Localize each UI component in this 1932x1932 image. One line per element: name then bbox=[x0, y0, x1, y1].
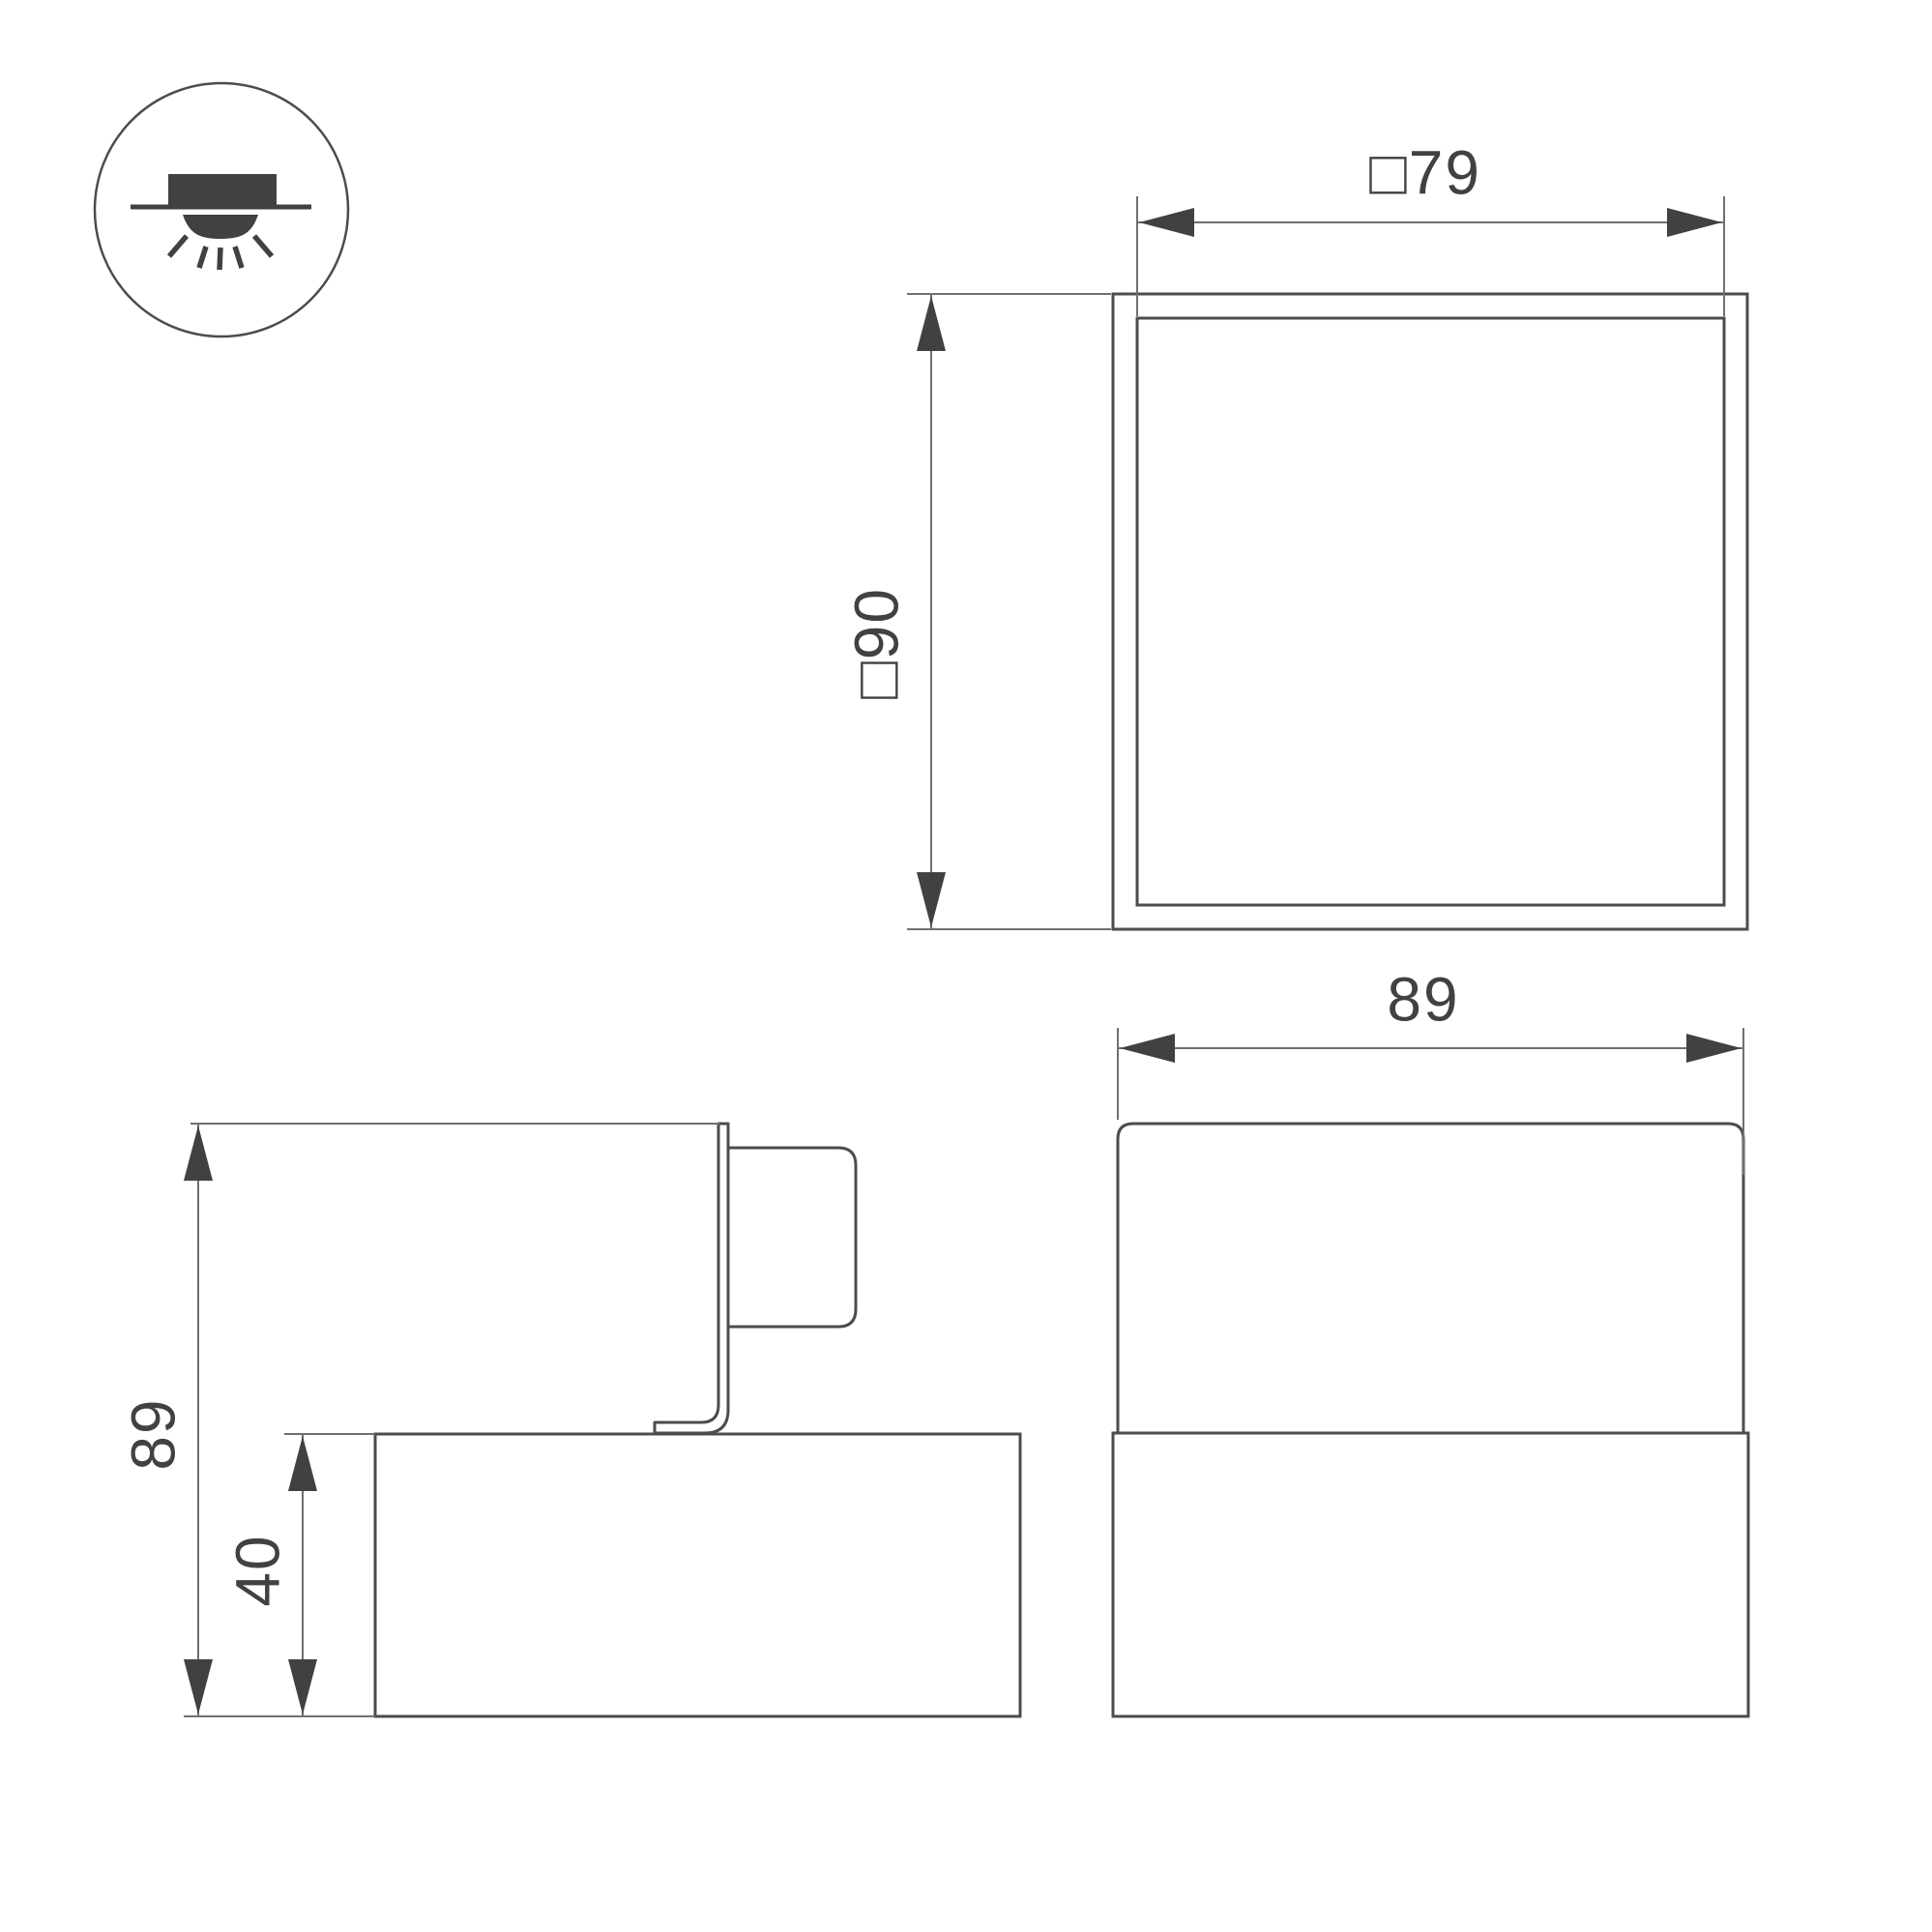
arrowhead-top bbox=[184, 1126, 213, 1181]
surface-mount-downlight-icon bbox=[95, 83, 348, 337]
front-view-lamp-head bbox=[1118, 1124, 1743, 1433]
icon-circle bbox=[95, 83, 348, 337]
side-view-base bbox=[375, 1434, 1020, 1716]
dimension-top-width: □79 bbox=[1137, 137, 1724, 316]
light-ray bbox=[235, 247, 242, 268]
front-view-base bbox=[1113, 1433, 1748, 1716]
side-view: 89 40 bbox=[118, 1124, 1020, 1716]
front-view: 89 bbox=[1113, 964, 1748, 1716]
arrowhead-right bbox=[1667, 208, 1722, 237]
dimension-label-front-width: 89 bbox=[1387, 964, 1459, 1034]
dimension-label-side-total-height: 89 bbox=[118, 1397, 188, 1470]
light-ray bbox=[199, 247, 206, 268]
top-view-inner-square bbox=[1137, 318, 1724, 905]
icon-fixture-body bbox=[168, 174, 277, 205]
dimension-front-width: 89 bbox=[1118, 964, 1743, 1175]
arrowhead-bottom bbox=[184, 1659, 213, 1714]
arrowhead-left bbox=[1120, 1034, 1175, 1063]
dimension-label-top-height: □90 bbox=[841, 587, 911, 699]
drawing-canvas: □79 □90 89 bbox=[0, 0, 1932, 1932]
dimension-label-top-width: □79 bbox=[1369, 137, 1481, 207]
icon-light-rays bbox=[169, 236, 272, 270]
arrowhead-bottom bbox=[288, 1659, 317, 1714]
arrowhead-top bbox=[288, 1436, 317, 1491]
dimension-label-side-base-height: 40 bbox=[222, 1534, 292, 1606]
light-ray bbox=[169, 236, 187, 256]
arrowhead-bottom bbox=[917, 872, 946, 927]
dimension-top-height: □90 bbox=[841, 294, 1111, 929]
arrowhead-right bbox=[1686, 1034, 1742, 1063]
light-ray bbox=[254, 236, 272, 256]
arrowhead-top bbox=[917, 296, 946, 351]
light-ray bbox=[220, 248, 220, 270]
icon-lamp-dome bbox=[183, 215, 258, 239]
dimension-side-total-height: 89 bbox=[118, 1124, 375, 1716]
luminaire-dimension-drawing: □79 □90 89 bbox=[0, 0, 1932, 1932]
top-view-outer-square bbox=[1113, 294, 1747, 929]
side-view-driver-box bbox=[728, 1148, 856, 1327]
arrowhead-left bbox=[1139, 208, 1194, 237]
side-view-mounting-bracket bbox=[655, 1124, 728, 1433]
dimension-side-base-height: 40 bbox=[222, 1434, 375, 1716]
top-view: □79 □90 bbox=[841, 137, 1747, 929]
